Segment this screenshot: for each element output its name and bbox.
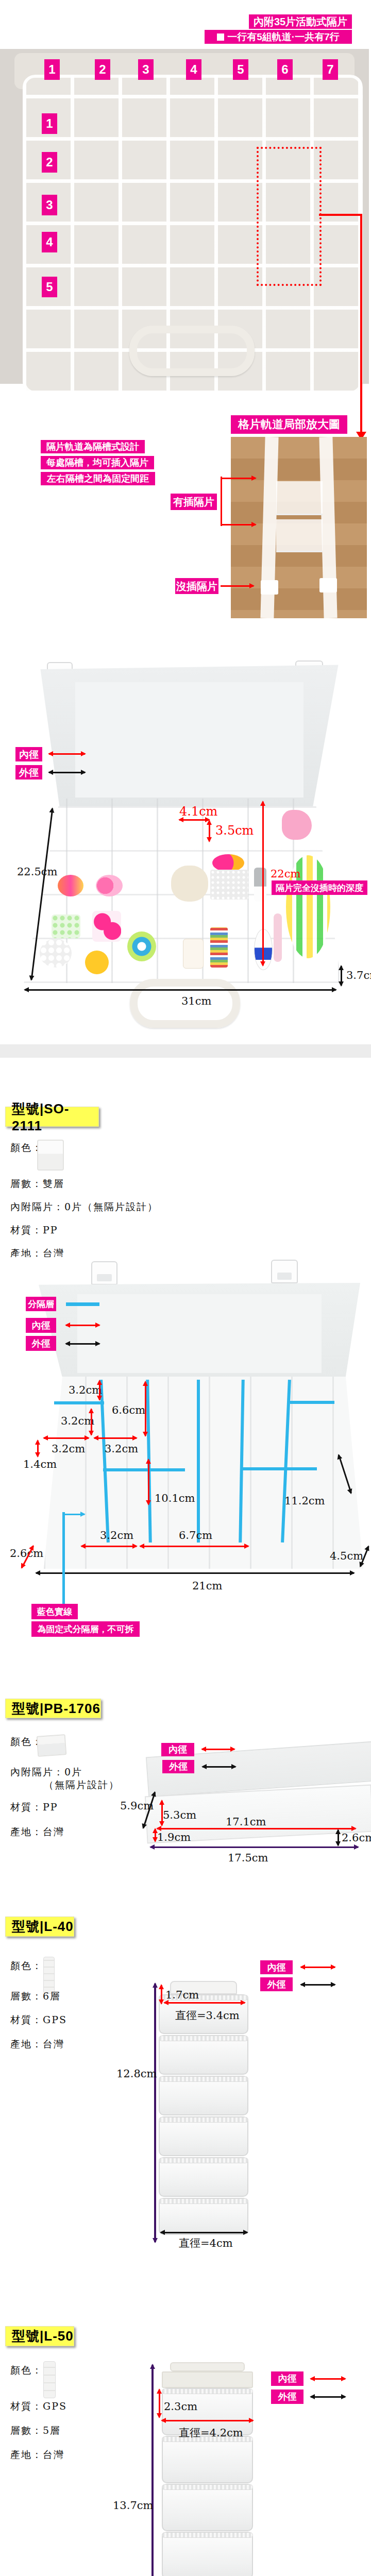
so-arrow-3-2c — [44, 1437, 89, 1439]
l40-arrow-dia-bottom — [161, 2232, 247, 2233]
so-arrow-3-2d — [94, 1437, 137, 1439]
inner-dia-label-l40: 內徑 — [260, 1960, 293, 1974]
outer-dia-arrow-pb1706 — [203, 1766, 235, 1768]
so-measure-21: 21cm — [192, 1580, 222, 1592]
model-heading-pb1706-text: 型號|PB-1706 — [12, 1700, 100, 1718]
so2111-lid-shape — [39, 1283, 360, 1377]
bracket-vertical — [221, 477, 222, 526]
rail-note-3: 左右隔槽之間為固定間距 — [41, 472, 155, 485]
blue-note-arrow — [64, 1514, 85, 1515]
rail-note-3-text: 左右隔槽之間為固定間距 — [47, 474, 149, 483]
l50-photo — [157, 2362, 258, 2576]
washi-white-item — [183, 939, 204, 969]
rail-note-2-text: 每處隔槽，均可插入隔片 — [46, 458, 148, 467]
column-tag-3-text: 3 — [142, 63, 149, 76]
l50-lid-top — [170, 2362, 245, 2371]
without-divider-arrow — [221, 585, 254, 587]
intro-banner-2: 一行有5組軌道·一共有7行 — [205, 30, 352, 44]
l40-jar-3 — [159, 2076, 248, 2115]
pearl-sheet-item — [210, 870, 248, 900]
cyan-shelf-lower-right — [240, 1467, 317, 1470]
pb-measure-17-1: 17.1cm — [226, 1816, 266, 1828]
arrow-4-1cm — [179, 819, 209, 821]
so-measure-11-2: 11.2cm — [284, 1495, 325, 1507]
outer-dia-label-openbox: 外徑 — [15, 765, 42, 779]
so-measure-3-2c: 3.2cm — [52, 1443, 85, 1455]
scissors-item — [254, 868, 266, 902]
arrow-3-5cm — [209, 821, 210, 841]
pb-arrow-2-6 — [338, 1830, 339, 1845]
depth-note-label: 隔片完全沒插時的深度 — [272, 880, 367, 895]
l40-measure-1-7: 1.7cm — [165, 1989, 199, 2001]
row-tag-4-text: 4 — [46, 236, 53, 248]
layer-label-text: 分隔層 — [28, 1300, 54, 1309]
so-measure-6-7: 6.7cm — [179, 1529, 212, 1541]
depth-note-text: 隔片完全沒插時的深度 — [276, 884, 363, 892]
so2111-lid-inner — [77, 1294, 322, 1373]
inner-dia-text: 內徑 — [19, 750, 39, 759]
outer-dia-label-l40: 外徑 — [260, 1977, 293, 1991]
open-box-photo — [0, 649, 371, 1046]
outer-dia-arrow-l50 — [311, 2396, 345, 2398]
rail-note-2: 每處隔槽，均可插入隔片 — [41, 456, 154, 469]
column-tag-2-text: 2 — [99, 63, 106, 76]
so-arrow-1-4 — [37, 1440, 39, 1456]
model-heading-l50-text: 型號|L-50 — [12, 2327, 74, 2345]
so-measure-3-2a: 3.2cm — [69, 1384, 102, 1396]
so-measure-4-5: 4.5cm — [330, 1550, 363, 1562]
rail-zoom-caption-text: 格片軌道局部放大圖 — [238, 419, 340, 430]
with-divider-arrow-bottom — [221, 524, 256, 526]
yellow-pompom-item — [85, 951, 109, 974]
open-lid-shape — [31, 662, 348, 806]
inner-dia-text-l40: 內徑 — [267, 1963, 286, 1972]
inner-dia-text-so2111: 內徑 — [32, 1321, 50, 1330]
l40-jar-6 — [159, 2198, 248, 2235]
pb-arrow-5-3 — [161, 1801, 163, 1825]
l50-color-thumb — [43, 2361, 56, 2398]
arrow-22cm — [262, 802, 264, 965]
so-measure-3-2d: 3.2cm — [105, 1443, 138, 1455]
l40-jar-5 — [159, 2157, 248, 2197]
column-tag-4: 4 — [186, 59, 201, 80]
pb-arrow-17-5 — [150, 1846, 358, 1848]
section-separator — [0, 1044, 371, 1058]
l50-measure-dia-top: 直徑=4.2cm — [179, 2426, 243, 2440]
l50-material: 材質：GPS — [10, 2400, 67, 2413]
intro-banner-2-text: 一行有5組軌道·一共有7行 — [227, 32, 339, 42]
inner-dia-text-l50: 內徑 — [278, 2374, 297, 2383]
model-heading-pb1706: 型號|PB-1706 — [5, 1699, 101, 1718]
so2111-layers: 層數：雙層 — [10, 1177, 64, 1191]
measure-3-5cm: 3.5cm — [215, 823, 254, 838]
row-tag-2: 2 — [42, 152, 57, 173]
pb-arrow-1-9 — [155, 1829, 156, 1841]
pb1706-color-thumb — [37, 1734, 67, 1757]
l40-layers: 層數：6層 — [10, 1990, 61, 2003]
outer-dia-label-so2111: 外徑 — [26, 1336, 56, 1351]
pink-pompoms-item — [92, 911, 121, 942]
row-tag-4: 4 — [42, 232, 57, 252]
row-tag-3: 3 — [42, 195, 57, 215]
rail-slot-left — [261, 580, 278, 591]
model-heading-l50: 型號|L-50 — [5, 2326, 74, 2346]
inner-dia-arrow-l40 — [301, 1967, 335, 1968]
inner-dia-text-pb1706: 內徑 — [168, 1745, 187, 1754]
so-arrow-3-2e — [81, 1546, 137, 1547]
outer-dia-label-l50: 外徑 — [271, 2389, 303, 2404]
pb1706-dividers2: （無隔片設計） — [44, 1778, 120, 1792]
arrow-31cm — [25, 989, 336, 991]
cyan-shelf-lower-left — [103, 1468, 185, 1471]
outer-dia-text: 外徑 — [19, 768, 39, 777]
so2111-latch-right — [271, 1260, 298, 1283]
so-measure-6-6: 6.6cm — [112, 1404, 145, 1416]
striped-tape-item — [210, 927, 228, 968]
cyan-shelf-right — [290, 1401, 334, 1404]
hair-ties-item — [58, 875, 83, 896]
column-tag-2: 2 — [95, 59, 110, 80]
carry-handle — [129, 326, 255, 376]
l50-measure-2-3: 2.3cm — [164, 2400, 197, 2413]
blue-note-2: 為固定式分隔層，不可拆 — [31, 1621, 140, 1637]
l50-measure-height: 13.7cm — [113, 2499, 153, 2512]
pink-pen-item — [274, 913, 282, 962]
pompoms-top-item — [212, 854, 244, 872]
row-tag-2-text: 2 — [46, 156, 53, 168]
column-tag-1-text: 1 — [48, 63, 55, 76]
pb-arrow-17-1 — [157, 1828, 356, 1829]
column-tag-6-text: 6 — [281, 63, 288, 76]
pink-rings-item — [96, 875, 123, 896]
model-heading-l40-text: 型號|L-40 — [12, 1918, 74, 1936]
without-divider-label: 沒插隔片 — [175, 578, 218, 594]
so-arrow-3-2a — [99, 1381, 100, 1400]
inner-dia-arrow-pb1706 — [202, 1749, 234, 1750]
l50-arrow-height — [151, 2365, 154, 2576]
model-heading-so2111-text: 型號|SO-2111 — [12, 1100, 98, 1134]
blue-note-1-text: 藍色實線 — [37, 1607, 72, 1616]
doll-item — [171, 866, 208, 902]
outer-dia-arrow-l40 — [301, 1984, 335, 1986]
so-measure-3-2b: 3.2cm — [61, 1415, 94, 1427]
l50-jar-4 — [162, 2532, 253, 2576]
so2111-material: 材質：PP — [10, 1224, 58, 1237]
grid-box-photo: 1 2 3 4 5 6 7 1 2 3 4 5 — [0, 49, 369, 384]
cyan-shelf-left — [54, 1401, 104, 1404]
so2111-color-thumb — [37, 1140, 64, 1171]
pb-measure-5-3: 5.3cm — [163, 1809, 196, 1821]
so2111-dividers: 內附隔片：0片（無隔片設計） — [10, 1200, 158, 1214]
l50-jar-3 — [162, 2484, 253, 2531]
highlight-dashed-rect — [257, 147, 322, 286]
l40-origin: 產地：台灣 — [10, 2038, 64, 2051]
l40-arrow-dia-top — [164, 2002, 245, 2004]
l40-material: 材質：GPS — [10, 2013, 67, 2027]
bullet-square-icon — [217, 33, 224, 41]
rail-note-1-text: 隔片軌道為隔槽式設計 — [46, 442, 139, 451]
cyan-divider-3 — [197, 1380, 200, 1543]
layer-label-so2111: 分隔層 — [26, 1297, 56, 1311]
outer-dia-text-l40: 外徑 — [267, 1980, 286, 1989]
so-arrow-21 — [36, 1572, 354, 1574]
l40-jar-4 — [159, 2116, 248, 2156]
l40-measure-dia-bottom: 直徑=4cm — [179, 2236, 233, 2250]
washi-blue-item — [127, 931, 156, 961]
l50-lid-base — [162, 2371, 253, 2388]
so-arrow-6-6 — [145, 1382, 146, 1436]
measure-22-5cm: 22.5cm — [17, 866, 57, 878]
measure-22cm: 22cm — [271, 868, 300, 880]
column-tag-5: 5 — [233, 59, 248, 80]
product-detail-page: 內附35片活動式隔片 一行有5組軌道·一共有7行 1 2 3 4 5 6 7 1… — [0, 0, 371, 2576]
column-tag-5-text: 5 — [237, 63, 244, 76]
pointer-line-v — [360, 214, 362, 434]
row-tag-1: 1 — [42, 113, 57, 134]
pb1706-origin: 產地：台灣 — [10, 1825, 64, 1839]
column-tag-6: 6 — [277, 59, 293, 80]
l50-layers: 層數：5層 — [10, 2424, 61, 2437]
inner-dia-arrow-so2111 — [66, 1325, 99, 1326]
with-divider-arrow-top — [221, 478, 256, 479]
l50-color-label: 顏色： — [10, 2364, 43, 2377]
l40-color-label: 顏色： — [10, 1959, 43, 1973]
pointer-line-h — [319, 214, 362, 216]
measure-3-7cm: 3.7cm — [346, 969, 371, 981]
with-divider-text: 有插隔片 — [173, 497, 214, 507]
column-tag-7: 7 — [323, 59, 338, 80]
pb1706-material: 材質：PP — [10, 1801, 58, 1814]
l40-arrow-height — [154, 1984, 156, 2242]
pb-measure-2-6: 2.6cm — [342, 1832, 371, 1844]
column-tag-4-text: 4 — [190, 63, 197, 76]
so-measure-1-4: 1.4cm — [23, 1458, 57, 1470]
outer-dia-arrow-so2111 — [66, 1343, 99, 1345]
green-beads-item — [52, 914, 80, 938]
blue-note-pointer — [62, 1512, 65, 1604]
inner-dia-label-so2111: 內徑 — [26, 1318, 56, 1333]
column-tag-1: 1 — [44, 59, 60, 80]
pb-measure-17-5: 17.5cm — [228, 1852, 268, 1864]
so-measure-3-2e: 3.2cm — [100, 1529, 133, 1541]
so-arrow-10-1 — [148, 1460, 149, 1504]
inner-dia-label-l50: 內徑 — [271, 2371, 303, 2386]
pb1706-dividers1: 內附隔片：0片 — [10, 1766, 82, 1779]
l50-arrow-2-3 — [159, 2389, 160, 2417]
measure-31cm: 31cm — [181, 995, 211, 1007]
inner-dia-arrow-l50 — [311, 2378, 345, 2380]
l40-jar-2 — [159, 2035, 248, 2075]
row-tag-5-text: 5 — [46, 281, 53, 293]
inner-dia-label-pb1706: 內徑 — [161, 1743, 194, 1756]
l50-jar-2 — [162, 2436, 253, 2483]
column-tag-3: 3 — [138, 59, 154, 80]
outer-dia-text-l50: 外徑 — [278, 2392, 297, 2401]
so-measure-10-1: 10.1cm — [155, 1492, 195, 1504]
row-tag-1-text: 1 — [46, 117, 53, 130]
pearl-bracelet-item — [40, 939, 72, 968]
inner-dia-label-openbox: 內徑 — [15, 747, 42, 761]
inner-dia-arrow-openbox — [49, 753, 85, 755]
rail-slot-right — [319, 578, 337, 589]
l40-measure-height: 12.8cm — [116, 2067, 157, 2080]
measure-4-1cm: 4.1cm — [179, 804, 217, 819]
outer-dia-text-so2111: 外徑 — [32, 1339, 50, 1348]
divider-inserted-1 — [276, 481, 323, 515]
model-heading-so2111: 型號|SO-2111 — [5, 1107, 99, 1127]
so-arrow-6-7 — [140, 1546, 248, 1547]
l50-arrow-dia-top — [162, 2420, 253, 2421]
layer-legend-line — [66, 1302, 99, 1306]
arrow-3-7cm — [341, 966, 342, 986]
blue-note-2-text: 為固定式分隔層，不可拆 — [38, 1625, 134, 1634]
without-divider-text: 沒插隔片 — [176, 581, 217, 591]
row-tag-5: 5 — [42, 277, 57, 297]
divider-inserted-2 — [276, 519, 323, 552]
outer-dia-label-pb1706: 外徑 — [162, 1760, 194, 1773]
intro-banner-1-text: 內附35片活動式隔片 — [254, 16, 347, 27]
row-tag-3-text: 3 — [46, 199, 53, 211]
l40-arrow-1-7 — [161, 1985, 162, 2004]
l50-origin: 產地：台灣 — [10, 2448, 64, 2462]
rail-closeup-photo — [231, 437, 367, 618]
blue-note-1: 藍色實線 — [31, 1604, 78, 1619]
column-tag-7-text: 7 — [327, 63, 333, 76]
outer-dia-text-pb1706: 外徑 — [169, 1762, 188, 1771]
lid-inner-panel — [75, 682, 303, 798]
l40-color-thumb — [43, 1957, 55, 1994]
so-arrow-3-2b — [91, 1409, 92, 1435]
with-divider-label: 有插隔片 — [171, 494, 217, 510]
so2111-latch-left — [91, 1261, 117, 1285]
rail-zoom-caption: 格片軌道局部放大圖 — [231, 415, 347, 434]
outer-dia-arrow-openbox — [49, 772, 85, 773]
intro-banner-1: 內附35片活動式隔片 — [249, 14, 352, 29]
rail-note-1: 隔片軌道為隔槽式設計 — [41, 440, 145, 453]
model-heading-l40: 型號|L-40 — [5, 1917, 74, 1937]
l40-measure-dia-top: 直徑=3.4cm — [175, 2008, 240, 2023]
pb-measure-1-9: 1.9cm — [157, 1831, 191, 1843]
pink-bow-item — [282, 810, 312, 840]
